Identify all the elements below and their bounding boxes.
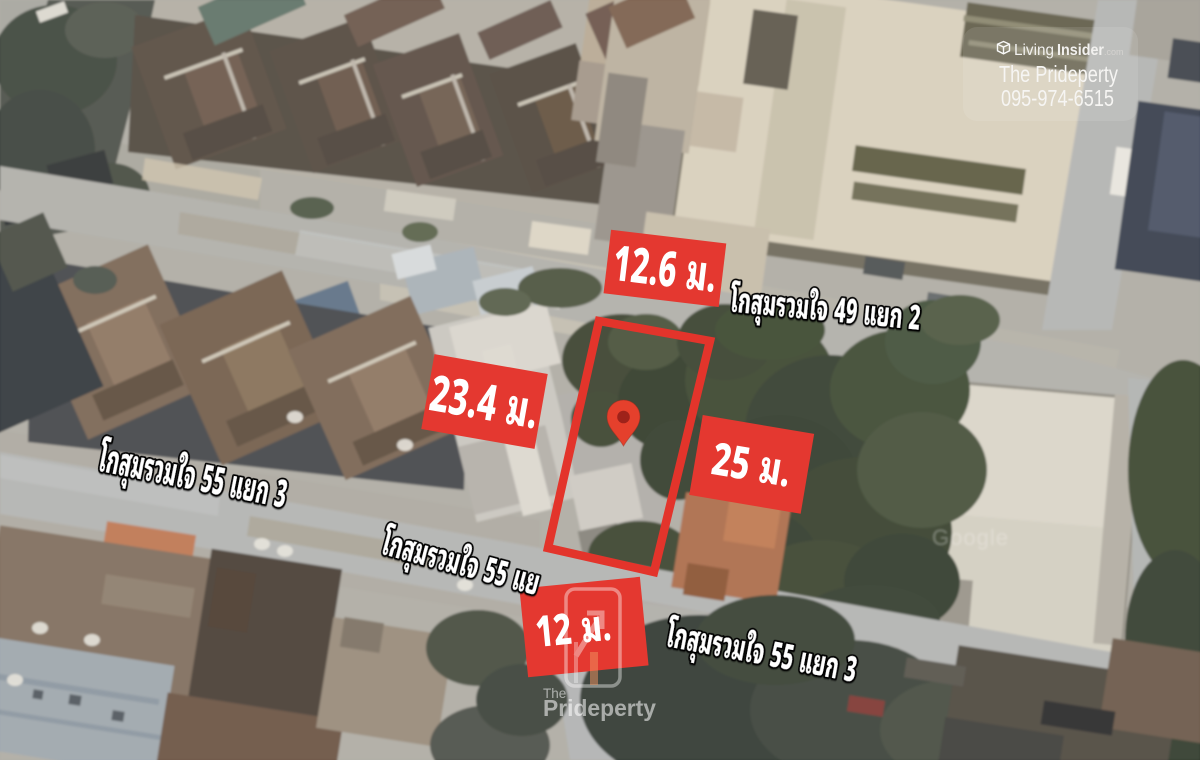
svg-text:Prideperty: Prideperty	[543, 695, 656, 721]
svg-text:The Prideperty: The Prideperty	[999, 61, 1118, 87]
svg-text:095-974-6515: 095-974-6515	[1001, 85, 1114, 111]
